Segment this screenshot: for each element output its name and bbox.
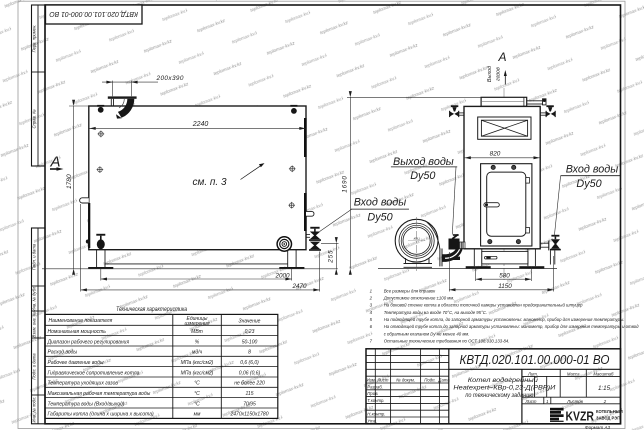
svg-text:Листов: Листов [566, 399, 583, 404]
svg-text:Котел водогрейный: Котел водогрейный [468, 376, 538, 384]
svg-text:580: 580 [499, 272, 510, 279]
svg-text:Формат А3: Формат А3 [585, 425, 611, 430]
svg-text:Справ. №: Справ. № [31, 109, 36, 128]
svg-text:Dy50: Dy50 [410, 170, 435, 182]
svg-text:Пров.: Пров. [367, 391, 378, 396]
svg-text:На отводящей трубе котла,до за: На отводящей трубе котла,до запорной арм… [384, 324, 639, 329]
svg-text:0,06 (0,6): 0,06 (0,6) [239, 370, 261, 376]
svg-text:Изм: Изм [367, 378, 375, 383]
svg-text:с обратным клапаном Dу не мен: с обратным клапаном Dу не менее 40 мм. [384, 331, 470, 336]
svg-text:Дата: Дата [437, 378, 450, 383]
svg-text:1:15: 1:15 [598, 385, 611, 392]
svg-text:м3/ч: м3/ч [192, 350, 203, 356]
svg-text:МПа (кгс/см2): МПа (кгс/см2) [181, 370, 214, 376]
svg-text:1690: 1690 [341, 175, 348, 192]
svg-text:Техническая характеристика: Техническая характеристика [116, 307, 188, 313]
svg-text:2470: 2470 [291, 283, 307, 290]
svg-text:°С: °С [194, 391, 200, 397]
svg-text:Н.контр.: Н.контр. [367, 412, 385, 417]
svg-text:см. п. 3: см. п. 3 [193, 177, 227, 188]
svg-text:На боковой стенке котла в обла: На боковой стенке котла в области топочн… [384, 303, 583, 308]
svg-text:Лит.: Лит. [527, 371, 538, 376]
svg-text:820: 820 [490, 151, 501, 158]
svg-text:°С: °С [194, 381, 200, 387]
svg-text:Масштаб: Масштаб [593, 371, 614, 376]
svg-text:Вход воды: Вход воды [354, 197, 406, 209]
svg-text:1150: 1150 [498, 283, 512, 290]
svg-text:Все размеры для справок: Все размеры для справок [384, 288, 436, 293]
svg-text:%: % [195, 339, 200, 345]
svg-text:не более 220: не более 220 [234, 381, 265, 387]
svg-text:Подп. и дата: Подп. и дата [31, 353, 36, 380]
svg-text:Лист: Лист [524, 399, 536, 404]
svg-text:Рабочее давление воды: Рабочее давление воды [48, 360, 104, 366]
svg-text:МВт: МВт [191, 329, 203, 335]
svg-text:2240: 2240 [192, 121, 209, 128]
svg-text:0,6 (6,0): 0,6 (6,0) [240, 360, 259, 366]
svg-text:Лист: Лист [376, 378, 388, 383]
svg-text:Допустимое отклонение ±100 мм: Допустимое отклонение ±100 мм. [383, 296, 455, 301]
svg-text:Инв. № дубл.: Инв. № дубл. [31, 286, 36, 312]
svg-text:1780: 1780 [66, 174, 73, 189]
svg-text:Остальные технические требован: Остальные технические требования по ОСТ … [384, 338, 510, 343]
svg-text:Расход воды: Расход воды [48, 350, 78, 356]
svg-text:ЗАВОД РЭП: ЗАВОД РЭП [596, 416, 620, 421]
svg-text:Перв. примен.: Перв. примен. [31, 25, 36, 53]
svg-text:по техническому заданию: по техническому заданию [465, 391, 533, 399]
svg-text:50-100: 50-100 [242, 339, 258, 345]
svg-text:А: А [498, 50, 507, 64]
svg-text:На подводящей трубе котла, до: На подводящей трубе котла, до запорной а… [384, 317, 625, 322]
svg-text:измерения: измерения [184, 321, 209, 327]
svg-text:Наименование показателя: Наименование показателя [49, 318, 113, 324]
svg-text:Масса: Масса [567, 371, 580, 376]
svg-text:Dy50: Dy50 [367, 212, 392, 224]
svg-text:Подп. и дата: Подп. и дата [31, 243, 36, 270]
svg-text:Температура уходящих газов: Температура уходящих газов [48, 381, 119, 387]
svg-text:Dy50: Dy50 [576, 178, 601, 190]
svg-text:Выход воды: Выход воды [393, 156, 454, 168]
svg-text:115: 115 [246, 391, 254, 397]
svg-text:Вход воды: Вход воды [566, 164, 618, 176]
svg-text:КВЦ: КВЦ [414, 237, 421, 241]
svg-text:МПа (кгс/см2): МПа (кгс/см2) [181, 360, 214, 366]
svg-text:2000: 2000 [274, 272, 290, 279]
svg-text:KVZR: KVZR [566, 409, 595, 424]
svg-text:Т.контр.: Т.контр. [367, 398, 384, 403]
svg-text:газов: газов [495, 67, 501, 81]
svg-text:Габариты котла (длина х ширина: Габариты котла (длина х ширина х высота) [48, 412, 155, 418]
svg-text:2470х1150х1780: 2470х1150х1780 [230, 412, 269, 418]
svg-text:Взам. инв. №: Взам. инв. № [31, 311, 36, 337]
svg-text:Гидравлическое сопротивление к: Гидравлическое сопротивление котла [48, 370, 140, 376]
svg-text:°С: °С [194, 401, 200, 407]
svg-text:КВТД.020.101.00.000-01 ВО: КВТД.020.101.00.000-01 ВО [49, 10, 138, 17]
svg-text:Значение: Значение [239, 318, 261, 324]
svg-text:мм: мм [194, 412, 201, 418]
svg-text:Диапазон рабочего регулировани: Диапазон рабочего регулирования [47, 339, 130, 345]
svg-text:Температура воды (Вход/выход): Температура воды (Вход/выход) [48, 401, 125, 407]
svg-text:Температура воды на входе 70°: Температура воды на входе 70°С, на выход… [384, 310, 487, 315]
svg-text:8: 8 [248, 350, 251, 356]
svg-text:Разраб.: Разраб. [367, 384, 383, 389]
svg-text:0,23: 0,23 [245, 329, 255, 335]
svg-text:70/95: 70/95 [243, 401, 256, 407]
svg-text:№ докум.: № докум. [396, 378, 415, 383]
svg-text:Heatexpert–КВр-0,23-Д(РВР)И: Heatexpert–КВр-0,23-Д(РВР)И [453, 385, 555, 392]
svg-text:Выход: Выход [487, 66, 493, 82]
svg-text:255: 255 [328, 250, 335, 264]
svg-text:Подп.: Подп. [424, 378, 435, 383]
svg-text:Утв.: Утв. [367, 418, 377, 423]
svg-text:Номинальная мощность: Номинальная мощность [48, 329, 107, 335]
svg-text:Максимальная рабочая температу: Максимальная рабочая температура воды [48, 391, 151, 397]
svg-text:200х390: 200х390 [156, 75, 184, 82]
svg-text:КВТД.020.101.00.000-01 ВО: КВТД.020.101.00.000-01 ВО [460, 353, 610, 367]
svg-text:КОТЕЛЬНЫЙ: КОТЕЛЬНЫЙ [596, 409, 623, 414]
svg-text:Инв. № подл.: Инв. № подл. [31, 397, 36, 423]
